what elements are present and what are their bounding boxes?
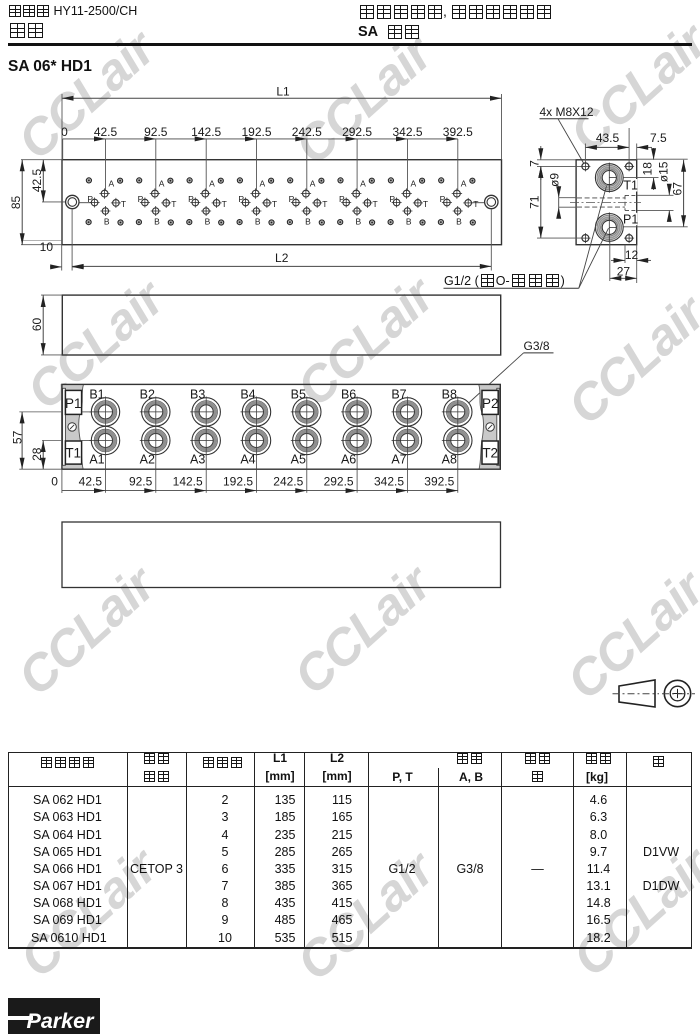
svg-text:T: T <box>372 199 377 209</box>
svg-text:A4: A4 <box>240 453 255 467</box>
svg-text:242.5: 242.5 <box>292 125 322 139</box>
svg-text:B3: B3 <box>190 387 205 401</box>
svg-text:0: 0 <box>51 474 58 488</box>
svg-text:67: 67 <box>671 182 685 196</box>
svg-text:P: P <box>87 194 93 204</box>
svg-text:A2: A2 <box>140 453 155 467</box>
svg-text:T: T <box>121 199 126 209</box>
svg-text:71: 71 <box>528 195 542 209</box>
svg-text:B6: B6 <box>341 387 356 401</box>
svg-text:B5: B5 <box>291 387 306 401</box>
svg-text:42.5: 42.5 <box>30 168 44 192</box>
svg-text:342.5: 342.5 <box>374 474 404 488</box>
svg-text:7: 7 <box>528 160 542 167</box>
svg-text:142.5: 142.5 <box>191 125 221 139</box>
svg-text:42.5: 42.5 <box>79 474 103 488</box>
svg-text:28: 28 <box>30 447 44 461</box>
svg-text:A: A <box>159 178 165 188</box>
svg-text:T: T <box>322 199 327 209</box>
svg-text:92.5: 92.5 <box>144 125 168 139</box>
svg-text:P: P <box>289 194 295 204</box>
svg-text:0: 0 <box>61 125 68 139</box>
svg-text:B4: B4 <box>240 387 255 401</box>
svg-text:T: T <box>222 199 227 209</box>
svg-text:P: P <box>440 194 446 204</box>
svg-text:A5: A5 <box>291 453 306 467</box>
svg-text:A: A <box>310 178 316 188</box>
svg-text:292.5: 292.5 <box>324 474 354 488</box>
svg-text:T1: T1 <box>623 179 638 193</box>
svg-text:42.5: 42.5 <box>94 125 118 139</box>
svg-text:B: B <box>305 217 311 227</box>
svg-text:392.5: 392.5 <box>443 125 473 139</box>
svg-text:A7: A7 <box>391 453 406 467</box>
svg-text:10: 10 <box>40 240 54 254</box>
svg-text:292.5: 292.5 <box>342 125 372 139</box>
svg-text:B8: B8 <box>442 387 457 401</box>
svg-text:92.5: 92.5 <box>129 474 153 488</box>
svg-text:57: 57 <box>10 430 24 444</box>
svg-text:T2: T2 <box>482 445 498 460</box>
svg-text:L1: L1 <box>276 85 290 99</box>
svg-text:P: P <box>389 194 395 204</box>
svg-text:A: A <box>108 178 114 188</box>
svg-text:ø9: ø9 <box>548 173 562 187</box>
svg-text:142.5: 142.5 <box>173 474 203 488</box>
svg-text:L2: L2 <box>275 251 289 265</box>
svg-text:85: 85 <box>9 196 23 210</box>
svg-text:B1: B1 <box>89 387 104 401</box>
svg-text:T: T <box>473 199 478 209</box>
svg-text:B: B <box>104 217 110 227</box>
svg-text:A: A <box>209 178 215 188</box>
svg-text:192.5: 192.5 <box>241 125 271 139</box>
svg-text:60: 60 <box>30 318 44 332</box>
svg-text:A: A <box>360 178 366 188</box>
svg-text:A: A <box>259 178 265 188</box>
svg-text:T: T <box>272 199 277 209</box>
svg-text:A6: A6 <box>341 453 356 467</box>
svg-text:P: P <box>339 194 345 204</box>
svg-text:B: B <box>205 217 211 227</box>
svg-text:B2: B2 <box>140 387 155 401</box>
svg-text:P: P <box>238 194 244 204</box>
svg-text:18: 18 <box>641 162 655 176</box>
svg-text:B: B <box>406 217 412 227</box>
svg-text:B7: B7 <box>391 387 406 401</box>
svg-text:A1: A1 <box>89 453 104 467</box>
svg-text:A8: A8 <box>442 453 457 467</box>
svg-text:G3/8: G3/8 <box>524 339 550 353</box>
svg-text:A3: A3 <box>190 453 205 467</box>
svg-text:4x M8X12: 4x M8X12 <box>540 105 594 119</box>
svg-text:T: T <box>171 199 176 209</box>
svg-text:B: B <box>355 217 361 227</box>
svg-text:392.5: 392.5 <box>424 474 454 488</box>
svg-text:43.5: 43.5 <box>596 131 620 145</box>
svg-text:P: P <box>138 194 144 204</box>
svg-text:B: B <box>255 217 261 227</box>
svg-text:P2: P2 <box>482 396 499 411</box>
svg-text:342.5: 342.5 <box>392 125 422 139</box>
svg-text:A: A <box>461 178 467 188</box>
svg-text:P1: P1 <box>65 396 82 411</box>
svg-text:P1: P1 <box>623 213 638 227</box>
svg-text:7.5: 7.5 <box>650 131 667 145</box>
svg-text:A: A <box>410 178 416 188</box>
svg-text:B: B <box>154 217 160 227</box>
svg-text:T1: T1 <box>65 445 81 460</box>
svg-text:192.5: 192.5 <box>223 474 253 488</box>
svg-text:ø15: ø15 <box>657 161 671 182</box>
svg-text:27: 27 <box>617 265 631 279</box>
svg-text:12: 12 <box>625 248 639 262</box>
svg-text:242.5: 242.5 <box>273 474 303 488</box>
svg-text:P: P <box>188 194 194 204</box>
svg-text:B: B <box>456 217 462 227</box>
svg-text:T: T <box>423 199 428 209</box>
